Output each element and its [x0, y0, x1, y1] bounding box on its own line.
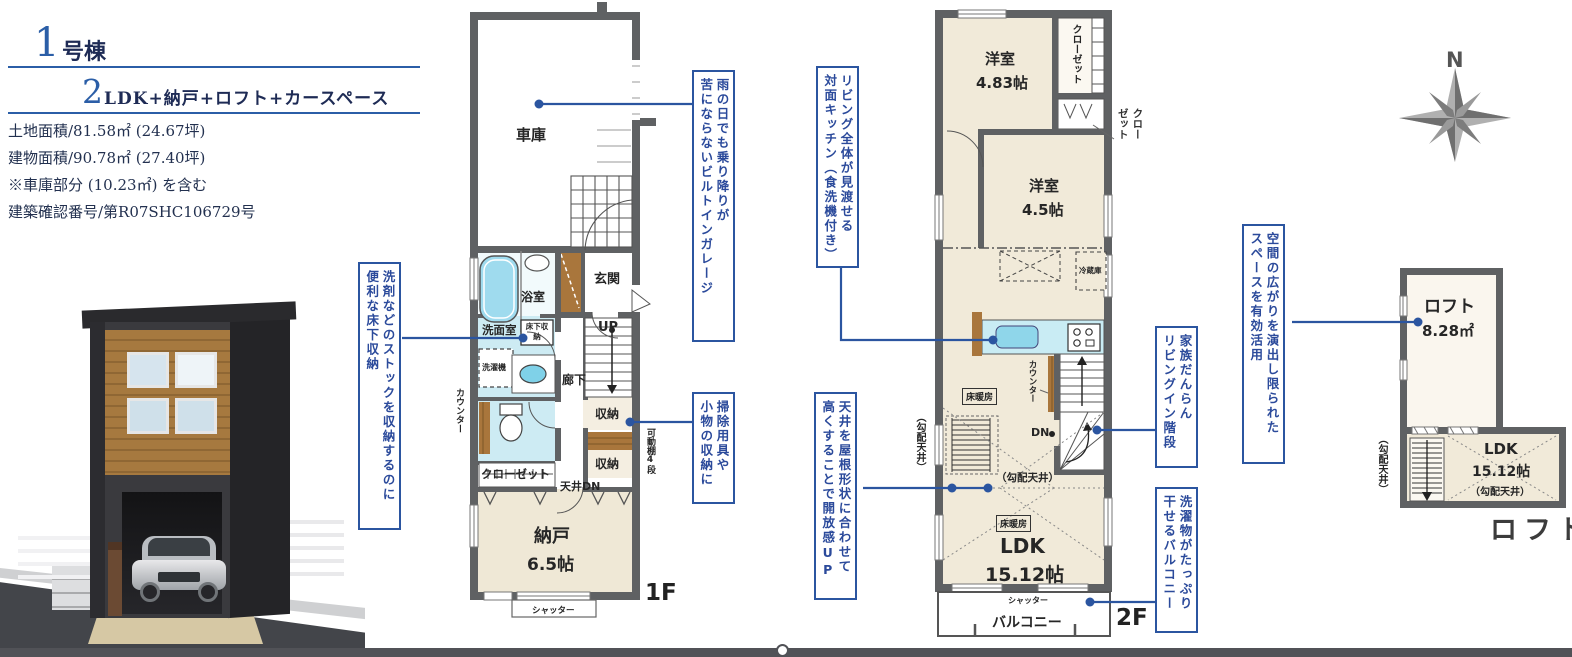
car-illustration — [128, 528, 230, 606]
spec-line: 建築確認番号/第R07SHC106729号 — [8, 201, 256, 222]
callout-cleaning-storage: 掃除用具や小物の収納に — [692, 392, 735, 504]
room-entrance: 玄関 — [594, 268, 620, 287]
bottom-divider-knob — [776, 644, 789, 657]
floor-label-2f: 2F — [1116, 605, 1148, 631]
unit-number: 1 — [34, 20, 59, 66]
room-ldk: LDK — [1000, 534, 1045, 558]
loft-ldk-label: LDK — [1484, 440, 1518, 458]
room-hallway: 廊下 — [562, 371, 586, 388]
callout-balcony: 洗濯物がたっぷり干せるバルコニー — [1155, 487, 1198, 633]
kitchen-wall-wood — [972, 312, 982, 356]
stove-icon — [1068, 324, 1100, 351]
loft-ldk-size: 15.12帖 — [1472, 461, 1530, 481]
house-window — [175, 398, 217, 434]
room-bedroom2-size: 4.5帖 — [1022, 199, 1064, 220]
stairs-2f — [1049, 354, 1112, 475]
callout-stairs: 家族だんらんリビングイン階段 — [1155, 326, 1198, 468]
sloped-ceiling-left-2f: （勾配天井） — [912, 412, 927, 472]
shutter-label-2f: シャッター — [1008, 595, 1048, 606]
leader-dots — [519, 100, 1423, 607]
closet-label-1f: クローゼット — [481, 466, 550, 482]
car-wheel — [198, 582, 218, 602]
room-storeroom: 納戸 — [534, 522, 570, 548]
counter-label-2f: カウンター — [1026, 360, 1038, 403]
floor-heating-b: 床暖房 — [996, 515, 1031, 532]
bath-sink-icon — [525, 255, 549, 271]
house-window — [127, 352, 169, 388]
kitchen-counter — [982, 320, 1104, 354]
room-bedroom1: 洋室 — [985, 48, 1015, 69]
loft-sloped-ceiling-left: （勾配天井） — [1374, 434, 1389, 494]
room-washroom: 洗面室 — [482, 322, 517, 338]
house-left-column — [90, 322, 105, 618]
loft-ladder — [946, 416, 998, 474]
loft-sloped-ceiling: （勾配天井） — [1470, 483, 1530, 498]
stairs-up-label: UP — [598, 320, 618, 335]
callout-garage: 雨の日でも乗り降りが苦にならないビルトインガレージ — [692, 70, 735, 342]
shutter-label-1f: シャッター — [532, 604, 575, 616]
sloped-ceiling-label-2f: （勾配天井） — [996, 470, 1059, 485]
spec-line: ※車庫部分 (10.23㎡) を含む — [8, 174, 207, 195]
callout-loft: 空間の広がりを演出し限られたスペースを有効活用 — [1242, 224, 1285, 464]
dining-counter — [1048, 356, 1059, 412]
flyer-canvas: { "header": { "unit_number": "1", "unit_… — [0, 0, 1572, 657]
house-photo — [0, 280, 365, 657]
car-wheel — [140, 582, 160, 602]
storage-a-label: 収納 — [595, 405, 619, 422]
room-loft-size: 8.28㎡ — [1422, 320, 1474, 341]
loft-stairs — [1410, 438, 1444, 501]
underfloor-storage-label: 床下収納 — [524, 322, 550, 342]
closet-2f-2 — [1052, 99, 1114, 139]
bathtub-icon — [480, 256, 518, 322]
counter-label-1f: カウンター — [453, 388, 466, 433]
washer-label: 洗濯機 — [482, 362, 506, 373]
house-window — [175, 352, 217, 388]
room-bedroom2: 洋室 — [1029, 175, 1059, 196]
header-rule-1 — [8, 66, 420, 68]
mailbox-post — [108, 542, 122, 616]
counter-strip — [479, 402, 490, 454]
room-ldk-size: 15.12帖 — [985, 560, 1064, 587]
callout-underfloor-storage: 洗剤などのストックを収納するのに便利な床下収納 — [358, 262, 401, 530]
stairs-down-label: DN — [1031, 426, 1049, 439]
toilet-icon — [500, 404, 522, 441]
stairs-garage — [571, 176, 632, 250]
cupboard-box — [1000, 251, 1060, 281]
room-loft: ロフト — [1424, 292, 1475, 317]
floor-heating-a: 床暖房 — [962, 388, 997, 405]
wood-panel — [105, 330, 230, 475]
compass-icon — [1399, 68, 1511, 162]
callout-ceiling: 天井を屋根形状に合わせて高くすることで開放感UP — [814, 392, 857, 600]
floor-label-loft: ロフト — [1490, 508, 1572, 547]
room-storeroom-size: 6.5帖 — [527, 550, 574, 575]
ceiling-down-label: 天井DN — [560, 478, 600, 494]
house-side-wall — [228, 314, 290, 618]
fridge-label: 冷蔵庫 — [1079, 265, 1102, 276]
kitchen-sink-icon — [996, 326, 1038, 348]
header-rule-2 — [8, 112, 420, 114]
balcony-label: バルコニー — [992, 612, 1062, 632]
room-garage: 車庫 — [516, 124, 546, 145]
compass-north-label: N — [1446, 48, 1464, 72]
spec-line: 土地面積/81.58㎡ (24.67坪) — [8, 120, 205, 141]
callout-kitchen: リビング全体が見渡せる対面キッチン（食洗機付き） — [816, 66, 859, 268]
plan-text: LDK+納戸+ロフト+カースペース — [104, 84, 389, 109]
fence-left — [18, 536, 90, 588]
unit-suffix: 号棟 — [62, 34, 106, 66]
storage-b-label: 収納 — [595, 455, 619, 472]
floor-label-1f: 1F — [645, 580, 677, 606]
room-bedroom1-size: 4.83帖 — [976, 72, 1028, 93]
closet2-label-2f: クローゼット — [1115, 108, 1144, 140]
movable-shelf-label: 可動棚4段 — [644, 428, 657, 474]
house-window — [127, 398, 169, 434]
room-bathroom: 浴室 — [521, 288, 545, 305]
spec-line: 建物面積/90.78㎡ (27.40坪) — [8, 147, 205, 168]
plan-number: 2 — [82, 72, 103, 111]
sink-icon — [512, 355, 555, 393]
closet1-label-2f: クローゼット — [1068, 24, 1083, 84]
